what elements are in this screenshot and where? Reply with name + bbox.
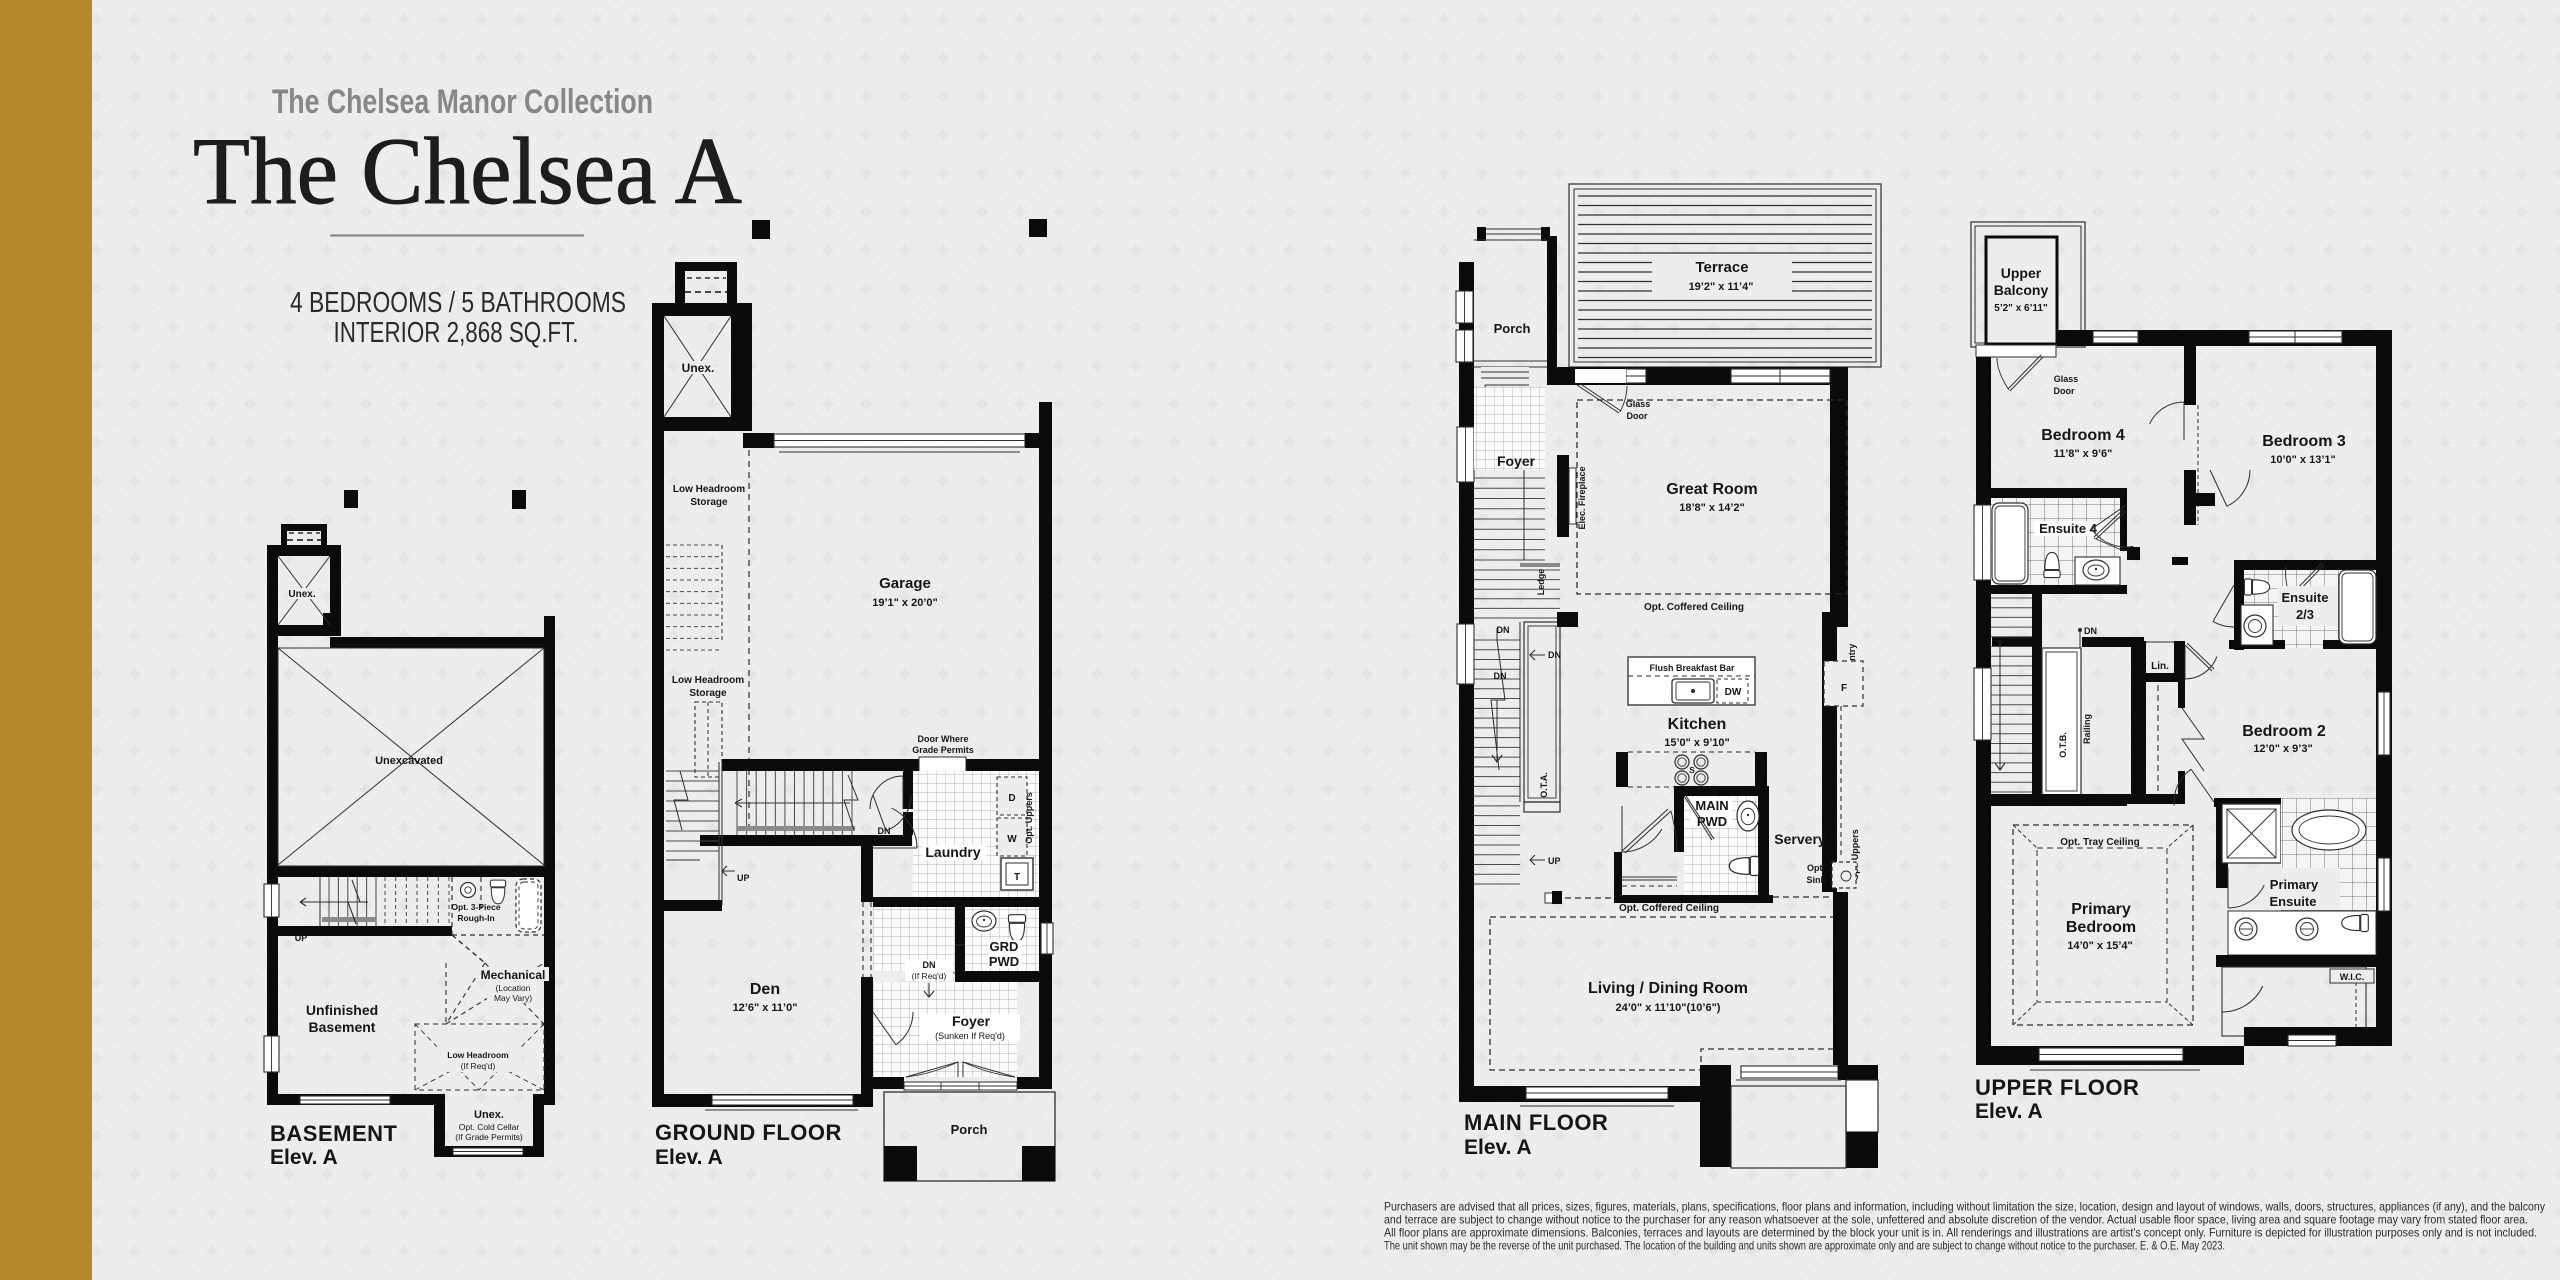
svg-text:O.T.B.: O.T.B. [2058,732,2068,758]
svg-text:Balcony: Balcony [1994,282,2049,298]
svg-text:T: T [1014,872,1020,883]
svg-text:UP: UP [295,933,308,943]
svg-text:Railing: Railing [2082,714,2092,744]
svg-text:DN: DN [923,960,936,970]
svg-text:DW: DW [1725,687,1742,698]
svg-text:Great Room: Great Room [1666,481,1758,498]
svg-text:The unit shown may be the reve: The unit shown may be the reverse of the… [1384,1239,2225,1253]
svg-text:Kitchen: Kitchen [1668,716,1727,733]
svg-text:All floor plans are approximat: All floor plans are approximate dimensio… [1384,1226,2537,1240]
svg-text:Door: Door [1627,411,1648,421]
svg-text:(If Req'd): (If Req'd) [912,971,947,981]
svg-text:DN: DN [1494,671,1507,681]
svg-text:Ensuite: Ensuite [2282,590,2329,605]
svg-text:15’0" x 9’10": 15’0" x 9’10" [1664,737,1729,749]
svg-text:The Chelsea Manor Collection: The Chelsea Manor Collection [272,83,653,121]
svg-text:Bedroom 3: Bedroom 3 [2262,433,2346,450]
svg-text:Lin.: Lin. [2151,661,2169,672]
svg-text:and terrace are subject to cha: and terrace are subject to change withou… [1384,1213,2528,1227]
svg-text:(If Grade Permits): (If Grade Permits) [455,1132,523,1142]
svg-text:DN: DN [878,826,891,836]
svg-text:18’8" x 14’2": 18’8" x 14’2" [1679,502,1744,514]
svg-text:Elev. A: Elev. A [655,1146,723,1169]
svg-text:Unex.: Unex. [474,1109,504,1121]
svg-text:Ensuite 4: Ensuite 4 [2039,521,2098,536]
svg-text:Unex.: Unex. [682,361,715,375]
svg-text:Elec. Fireplace: Elec. Fireplace [1577,466,1587,529]
svg-text:S: S [1689,766,1695,775]
svg-text:MAIN: MAIN [1695,798,1728,813]
svg-text:Primary: Primary [2071,901,2131,918]
svg-text:(Location: (Location [496,983,531,993]
svg-text:UP: UP [737,873,750,883]
svg-text:W: W [1007,834,1017,845]
svg-text:Elev. A: Elev. A [270,1146,338,1169]
svg-text:UP: UP [1548,856,1561,866]
svg-text:Foyer: Foyer [1497,453,1536,469]
svg-text:Mechanical: Mechanical [481,968,546,982]
svg-text:PWD: PWD [1697,814,1727,829]
svg-text:Low Headroom: Low Headroom [672,675,744,686]
svg-text:May Vary): May Vary) [494,993,532,1003]
svg-text:Primary: Primary [2270,877,2319,892]
svg-text:D: D [1008,793,1015,804]
svg-text:Elev. A: Elev. A [1975,1100,2043,1123]
svg-text:19’1" x 20’0": 19’1" x 20’0" [872,597,937,609]
svg-text:Ensuite: Ensuite [2270,894,2317,909]
svg-text:Bedroom: Bedroom [2066,919,2136,936]
svg-text:Flush Breakfast Bar: Flush Breakfast Bar [1649,663,1735,673]
svg-text:W.I.C.: W.I.C. [2340,972,2365,982]
svg-text:PWD: PWD [989,954,1019,969]
svg-text:INTERIOR 2,868 SQ.FT.: INTERIOR 2,868 SQ.FT. [334,317,579,349]
svg-text:Elev. A: Elev. A [1464,1136,1532,1159]
svg-text:DN: DN [1548,650,1561,660]
svg-text:DN: DN [1497,625,1510,635]
svg-text:O.T.A.: O.T.A. [1539,772,1549,798]
svg-text:Sink: Sink [1806,875,1826,885]
svg-text:Storage: Storage [690,497,728,508]
svg-text:Bedroom 2: Bedroom 2 [2242,723,2326,740]
svg-text:4 BEDROOMS / 5 BATHROOMS: 4 BEDROOMS / 5 BATHROOMS [290,287,626,319]
svg-text:Ledge: Ledge [1536,569,1546,596]
svg-text:Laundry: Laundry [925,844,980,860]
svg-text:Bedroom 4: Bedroom 4 [2041,427,2125,444]
svg-text:Opt. Coffered Ceiling: Opt. Coffered Ceiling [1619,903,1719,914]
svg-text:(Sunken If Req'd): (Sunken If Req'd) [935,1031,1005,1041]
svg-text:Basement: Basement [309,1019,376,1035]
svg-text:Glass: Glass [2054,374,2079,384]
svg-text:GROUND FLOOR: GROUND FLOOR [655,1120,842,1145]
svg-text:Porch: Porch [1494,321,1531,336]
svg-text:F: F [1841,683,1847,694]
svg-text:Grade Permits: Grade Permits [912,745,974,755]
svg-text:Opt.: Opt. [1807,863,1825,873]
svg-text:Door Where: Door Where [917,734,968,744]
svg-text:The Chelsea A: The Chelsea A [193,118,742,224]
svg-text:Terrace: Terrace [1695,259,1748,276]
svg-text:Upper: Upper [2001,265,2042,281]
svg-text:12’6" x 11’0": 12’6" x 11’0" [733,1002,798,1014]
svg-text:11’8" x 9’6": 11’8" x 9’6" [2054,448,2113,460]
svg-text:Opt. Coffered Ceiling: Opt. Coffered Ceiling [1644,602,1744,613]
svg-text:19’2" x 11’4": 19’2" x 11’4" [1689,281,1754,293]
svg-text:24’0" x 11’10"(10’6"): 24’0" x 11’10"(10’6") [1616,1002,1721,1014]
svg-text:Unexcavated: Unexcavated [375,755,443,767]
svg-text:Opt. Uppers: Opt. Uppers [1024,792,1034,844]
svg-text:BASEMENT: BASEMENT [270,1121,398,1146]
svg-text:2/3: 2/3 [2296,607,2314,622]
svg-text:DN: DN [2084,626,2097,636]
svg-text:10’0" x 13’1": 10’0" x 13’1" [2270,454,2335,466]
svg-text:MAIN FLOOR: MAIN FLOOR [1464,1110,1608,1135]
svg-text:Garage: Garage [879,575,931,592]
svg-text:Rough-In: Rough-In [457,913,494,923]
svg-text:Low Headroom: Low Headroom [447,1050,509,1060]
svg-text:Purchasers are advised that al: Purchasers are advised that all prices, … [1384,1200,2545,1214]
svg-text:Storage: Storage [689,688,727,699]
svg-text:UPPER FLOOR: UPPER FLOOR [1975,1075,2139,1100]
svg-text:Living / Dining Room: Living / Dining Room [1588,980,1748,997]
svg-text:Low Headroom: Low Headroom [673,484,745,495]
svg-text:Opt. Cold Cellar: Opt. Cold Cellar [459,1122,520,1132]
svg-text:(If Req'd): (If Req'd) [461,1061,496,1071]
svg-text:14’0" x 15’4": 14’0" x 15’4" [2067,940,2132,952]
svg-text:Unfinished: Unfinished [306,1002,378,1018]
svg-text:5’2" x 6’11": 5’2" x 6’11" [1994,303,2048,314]
svg-text:Door: Door [2054,386,2075,396]
svg-text:Servery: Servery [1774,831,1826,847]
svg-text:Porch: Porch [951,1122,988,1137]
svg-text:Den: Den [750,981,780,998]
svg-text:Foyer: Foyer [952,1013,991,1029]
svg-text:GRD: GRD [990,939,1019,954]
svg-text:12’0" x 9’3": 12’0" x 9’3" [2253,743,2312,755]
svg-text:Opt. Tray Ceiling: Opt. Tray Ceiling [2060,837,2139,848]
svg-text:Opt. 3-Piece: Opt. 3-Piece [451,902,500,912]
svg-text:Unex.: Unex. [288,589,315,600]
